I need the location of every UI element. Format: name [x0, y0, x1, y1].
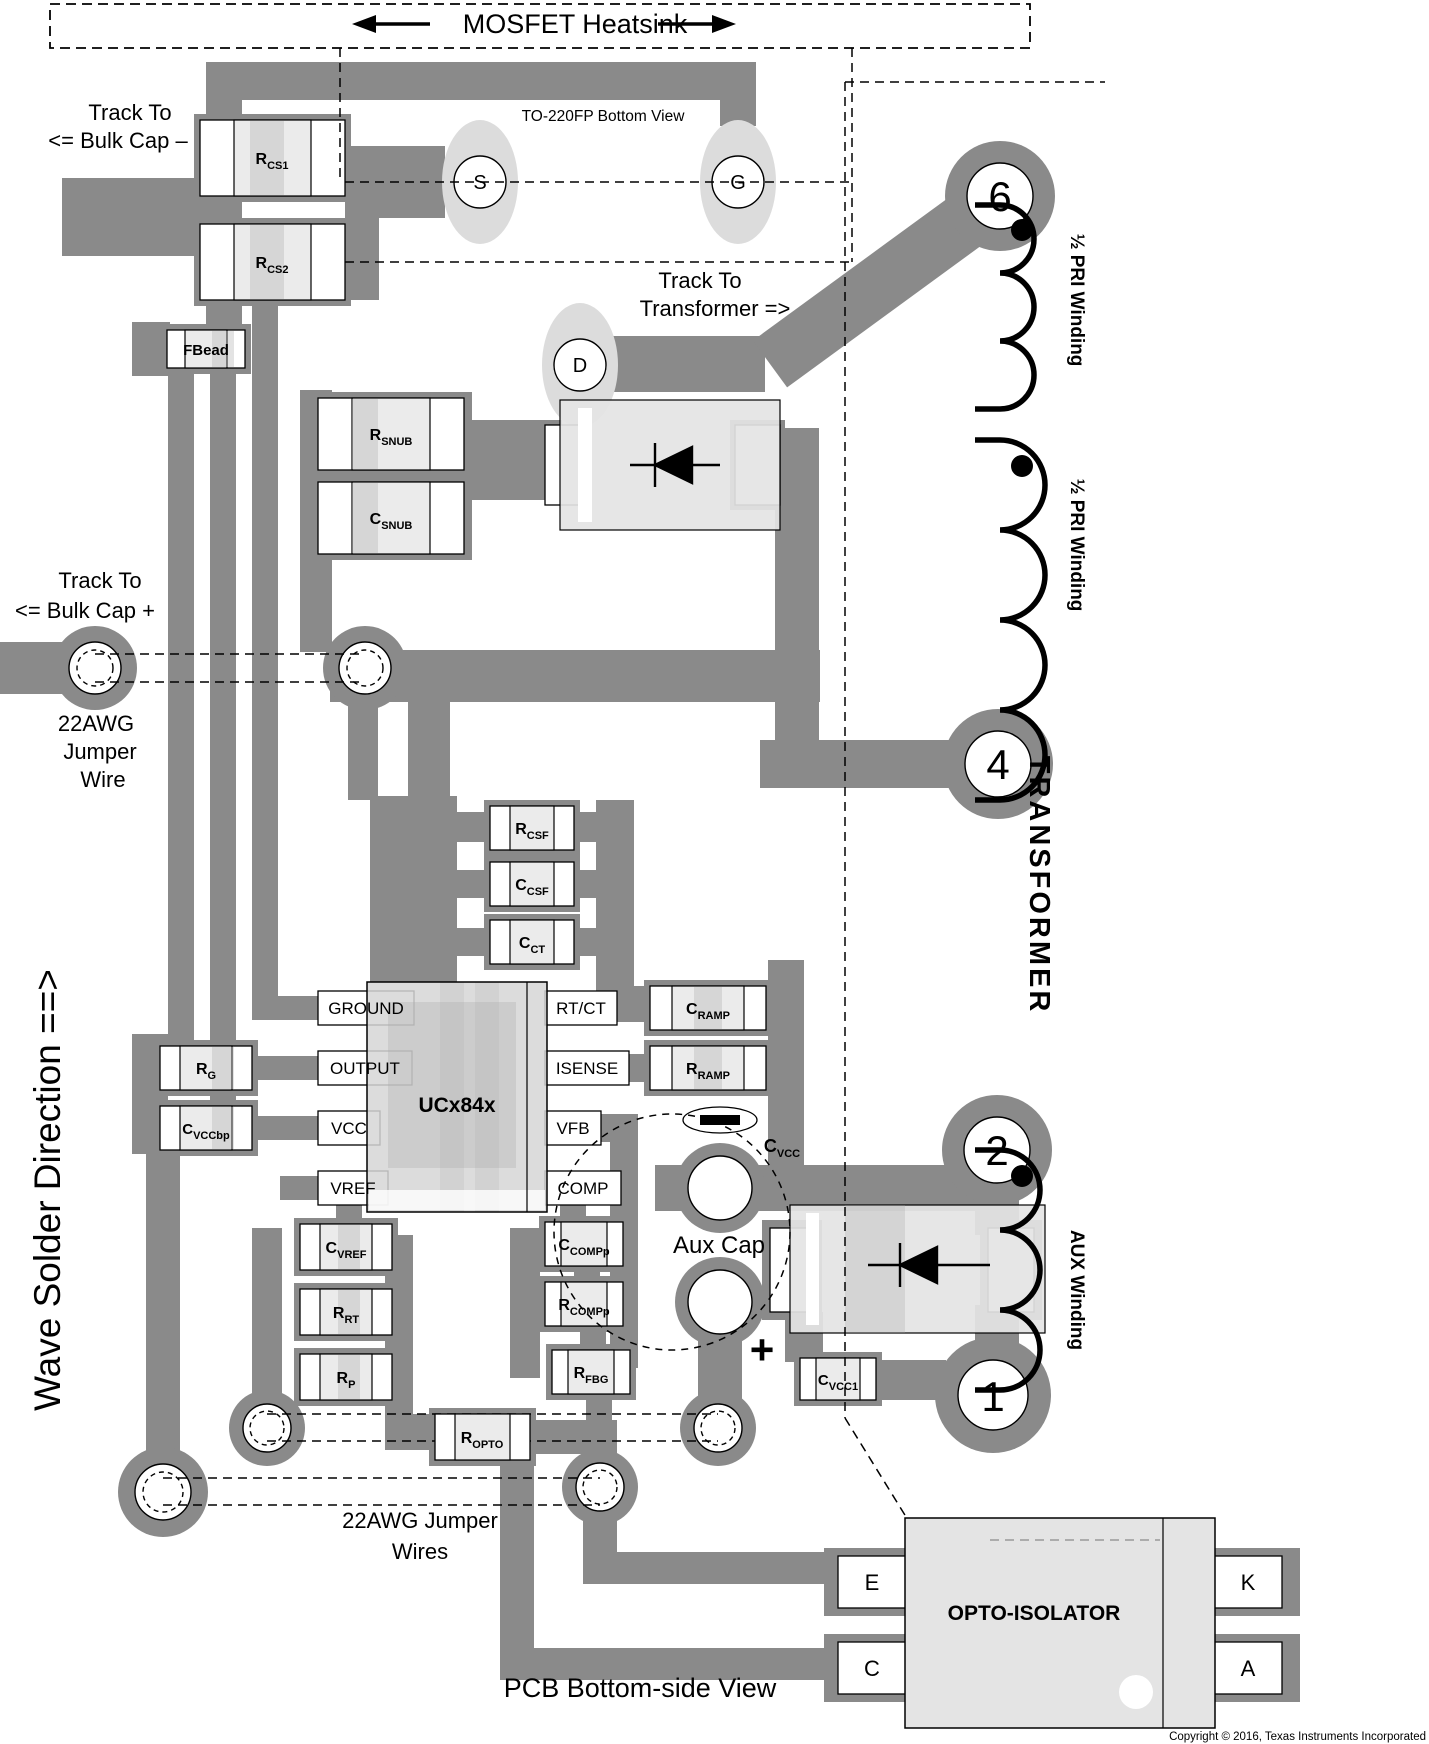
component-cvcc1: CVCC1 [800, 1358, 876, 1400]
ic-pin-vcc: VCC [331, 1119, 367, 1138]
pin2-number: 2 [985, 1127, 1008, 1174]
pad-d-label: D [573, 355, 587, 377]
pri-winding-1-dot [1011, 219, 1033, 241]
aux-winding-dot [1011, 1165, 1033, 1187]
component-ropto: ROPTO [435, 1414, 530, 1460]
heatsink-title: MOSFET Heatsink [352, 9, 736, 39]
track-to-transformer-line2: Transformer => [640, 296, 791, 321]
copyright-notice: Copyright © 2016, Texas Instruments Inco… [1169, 1731, 1426, 1743]
opto-pin-k: K [1241, 1570, 1256, 1595]
pri-winding-2-label: ½ PRI Winding [1066, 479, 1087, 612]
pri-winding-2-dot [1011, 455, 1033, 477]
snubber-diode [545, 400, 780, 530]
opto-pin-e: E [865, 1570, 880, 1595]
ic-pin-isense: ISENSE [556, 1059, 618, 1078]
auxcap-pad2-hole [688, 1270, 752, 1334]
pad-s-label: S [473, 172, 486, 194]
via-f [694, 1404, 742, 1452]
pri-winding-1-label: ½ PRI Winding [1066, 234, 1087, 367]
via-d [135, 1464, 191, 1520]
component-rp: RP [300, 1354, 392, 1400]
component-rramp: RRAMP [650, 1046, 766, 1090]
aux-winding-label: AUX Winding [1066, 1230, 1087, 1350]
component-rrt: RRT [300, 1289, 392, 1335]
ic-pin-vfb: VFB [556, 1119, 589, 1138]
pcb-view-title: PCB Bottom-side View [504, 1673, 777, 1703]
aux-diode [770, 1205, 1045, 1333]
fbead-label: FBead [183, 342, 229, 359]
pin1-number: 1 [981, 1373, 1004, 1420]
track-to-transformer-line1: Track To [658, 268, 741, 293]
ic-pin-ground: GROUND [328, 999, 404, 1018]
jumper-wire-label-line1: 22AWG [58, 711, 134, 736]
pcb-diagram-canvas: RCS1 RCS2 FBead RSNUB CSNUB [0, 0, 1429, 1744]
opto-pin-a: A [1241, 1656, 1256, 1681]
component-rcs1: RCS1 [200, 120, 345, 196]
via-c [243, 1404, 291, 1452]
aux-cap-label: Aux Cap [673, 1232, 765, 1259]
opto-pin1-dot [1119, 1675, 1153, 1709]
ic-pin-vref: VREF [330, 1179, 375, 1198]
ic-ucx84x: UCx84x GROUND OUTPUT VCC VREF RT/CT ISEN… [318, 982, 629, 1212]
opto-name: OPTO-ISOLATOR [948, 1602, 1121, 1625]
component-rg: RG [160, 1046, 252, 1090]
jumper-wires-label-line2: Wires [392, 1539, 448, 1564]
component-cct: CCT [490, 920, 574, 964]
aux-cap-plus-sign: + [750, 1326, 775, 1373]
via-a [69, 642, 121, 694]
transformer-label: TRANSFORMER [1023, 756, 1055, 1015]
jumper-wire-label-line2: Jumper [63, 739, 136, 764]
component-rcs2: RCS2 [200, 224, 345, 300]
track-to-bulk-plus-line1: Track To [58, 568, 141, 593]
jumper-wire-label-line3: Wire [80, 767, 125, 792]
pcb-layout-diagram: RCS1 RCS2 FBead RSNUB CSNUB [0, 0, 1429, 1744]
to220-label: TO-220FP Bottom View [522, 108, 686, 125]
opto-isolator: OPTO-ISOLATOR E C K A [838, 1518, 1282, 1728]
ic-pin-output: OUTPUT [330, 1059, 400, 1078]
auxcap-pad1-hole [688, 1156, 752, 1220]
via-b [339, 642, 391, 694]
diode-cathode-stripe [578, 408, 592, 522]
aux-cap-polarity-mark [683, 1107, 757, 1133]
heatsink-left-arrow [352, 15, 430, 33]
track-to-bulk-plus-line2: <= Bulk Cap + [15, 598, 155, 623]
opto-pin-c: C [864, 1656, 880, 1681]
via-e [576, 1463, 624, 1511]
track-to-bulk-minus-line2: <= Bulk Cap – [48, 128, 188, 153]
component-cramp: CRAMP [650, 986, 766, 1030]
component-fbead: FBead [167, 330, 245, 368]
ic-pin-rtct: RT/CT [556, 999, 606, 1018]
pin6-number: 6 [988, 173, 1011, 220]
component-rcompp: RCOMPp [545, 1282, 623, 1326]
component-rfbg: RFBG [552, 1350, 630, 1394]
heatsink-label: MOSFET Heatsink [463, 9, 688, 39]
component-rsnub: RSNUB [318, 398, 464, 470]
pad-g-label: G [730, 172, 746, 194]
component-cvref: CVREF [300, 1224, 392, 1270]
component-csnub: CSNUB [318, 482, 464, 554]
wave-solder-direction-label: Wave Solder Direction ==> [27, 969, 68, 1411]
jumper-wires-label-line1: 22AWG Jumper [342, 1508, 498, 1533]
aux-diode-cathode-stripe [806, 1213, 819, 1325]
component-cvccbp: CVCCbp [160, 1106, 252, 1150]
component-ccsf: CCSF [490, 862, 574, 906]
track-to-bulk-minus-line1: Track To [88, 100, 171, 125]
ic-name: UCx84x [418, 1094, 495, 1117]
pin4-number: 4 [986, 741, 1009, 788]
component-rcsf: RCSF [490, 806, 574, 850]
